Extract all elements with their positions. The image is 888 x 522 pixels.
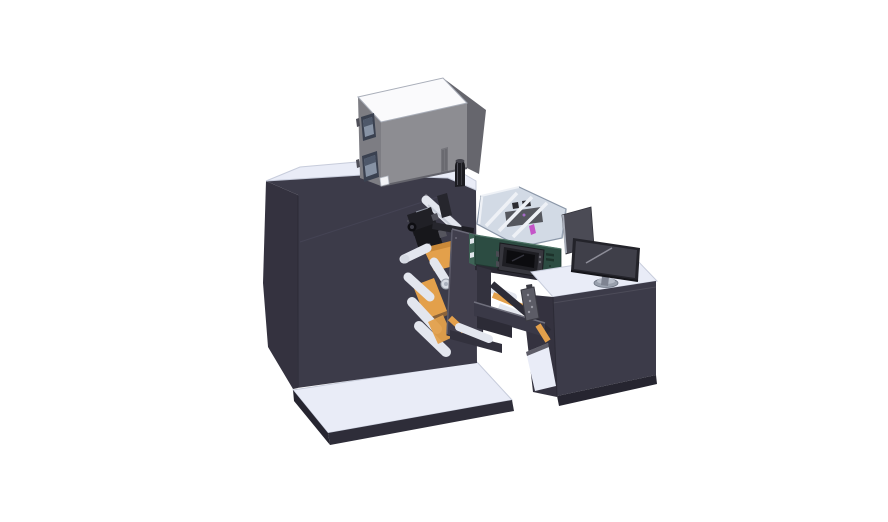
machine-illustration [0,0,888,522]
hand-controller [521,284,539,321]
screw-dot [455,237,457,239]
display-button [539,256,541,258]
display-tab [496,251,499,257]
roller-cap [401,255,410,264]
display-tab [496,261,499,267]
pendant-button [528,311,530,313]
knob-body [455,160,465,187]
screw-dot [407,220,409,222]
pendant-button [527,294,529,296]
machine-render-canvas [0,0,888,522]
enclosure-white-square [380,176,389,186]
purple-component [523,214,526,217]
hinge-tab [470,238,474,244]
head-hub-center [410,225,414,229]
top-enclosure [356,78,467,186]
hinge-tab [470,252,474,258]
knob-top [456,159,465,163]
display-button [539,261,541,263]
control-knob [455,159,465,187]
pendant-button [529,300,531,302]
guard-inner-detail [512,202,519,209]
enclosure-door-band [441,147,448,173]
pendant-button [531,306,533,308]
cabinet-left-face [263,181,298,389]
roller-cap-center [444,282,448,286]
vent-dot [549,265,551,267]
pendant-body [521,287,539,321]
